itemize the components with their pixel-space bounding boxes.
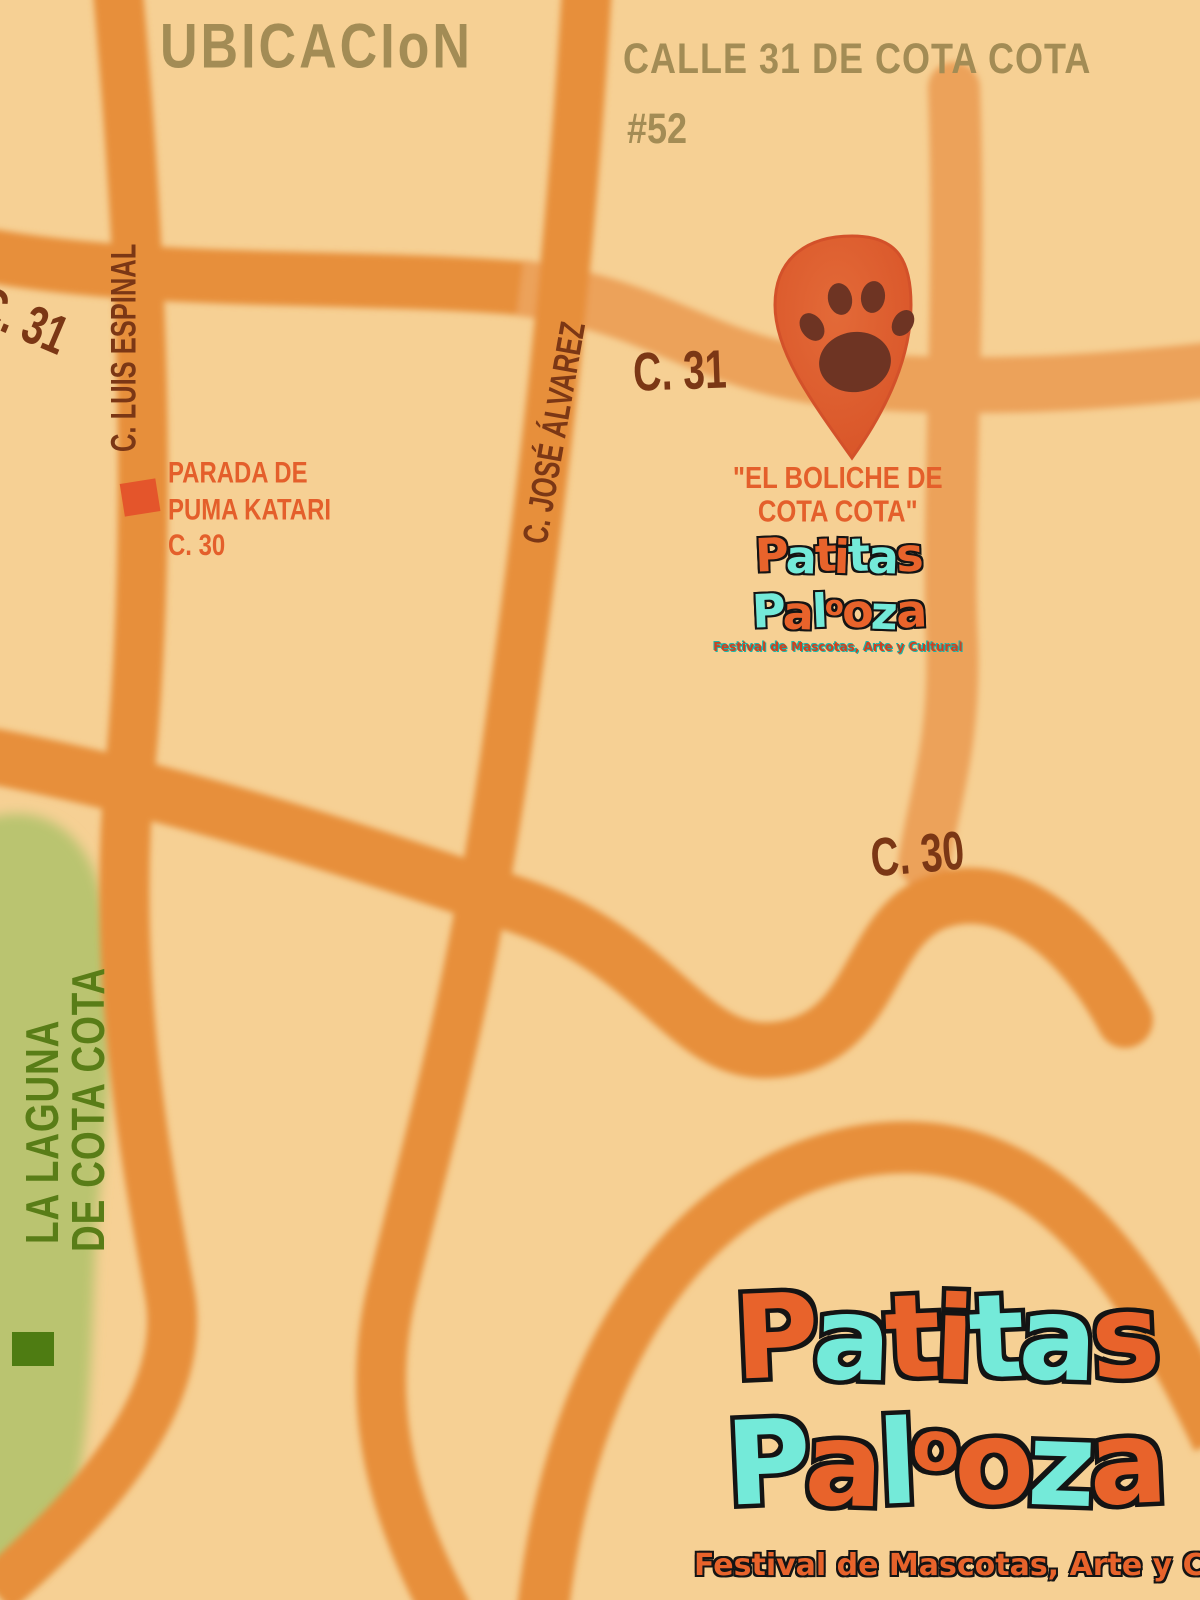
venue-logo-word2: Palooza xyxy=(693,584,983,638)
venue-logo-subtitle: Festival de Mascotas, Arte y Cultural xyxy=(693,640,983,654)
bus-stop-line1: PARADA DE xyxy=(168,455,331,491)
location-pin xyxy=(775,236,919,458)
bus-stop-line2: PUMA KATARI xyxy=(168,491,331,527)
laguna-label-line2: DE COTA COTA xyxy=(62,967,115,1252)
road-jose-alvarez xyxy=(381,0,588,1600)
bus-stop-line3: C. 30 xyxy=(168,528,331,564)
bus-stop-marker xyxy=(120,478,161,516)
street-label-c30: C. 30 xyxy=(868,818,967,890)
laguna-label-line1: LA LAGUNA xyxy=(16,1020,69,1244)
address-line2: #52 xyxy=(627,104,687,154)
address-line1: CALLE 31 DE COTA COTA xyxy=(623,34,1091,84)
street-label-c31-mid: C. 31 xyxy=(632,337,728,404)
venue-line1: "EL BOLICHE DE xyxy=(700,462,976,495)
main-logo-word1: Patitas xyxy=(694,1270,1194,1405)
main-logo-subtitle: Festival de Mascotas, Arte y Cultural xyxy=(694,1548,1194,1583)
page-title: UBICACIoN xyxy=(160,10,473,83)
street-label-luis-espinal: C. LUIS ESPINAL xyxy=(105,244,145,452)
map-poster: UBICACIoN CALLE 31 DE COTA COTA #52 C. 3… xyxy=(0,0,1200,1600)
laguna-legend-marker xyxy=(12,1332,54,1366)
venue-line2: COTA COTA" xyxy=(700,495,976,528)
bus-stop-note: PARADA DE PUMA KATARI C. 30 xyxy=(168,455,331,564)
road-c31-west xyxy=(0,252,560,292)
venue-name: "EL BOLICHE DE COTA COTA" xyxy=(700,462,976,529)
venue-logo-word1: Patitas xyxy=(693,528,983,582)
main-logo-word2: Palooza xyxy=(694,1396,1194,1531)
